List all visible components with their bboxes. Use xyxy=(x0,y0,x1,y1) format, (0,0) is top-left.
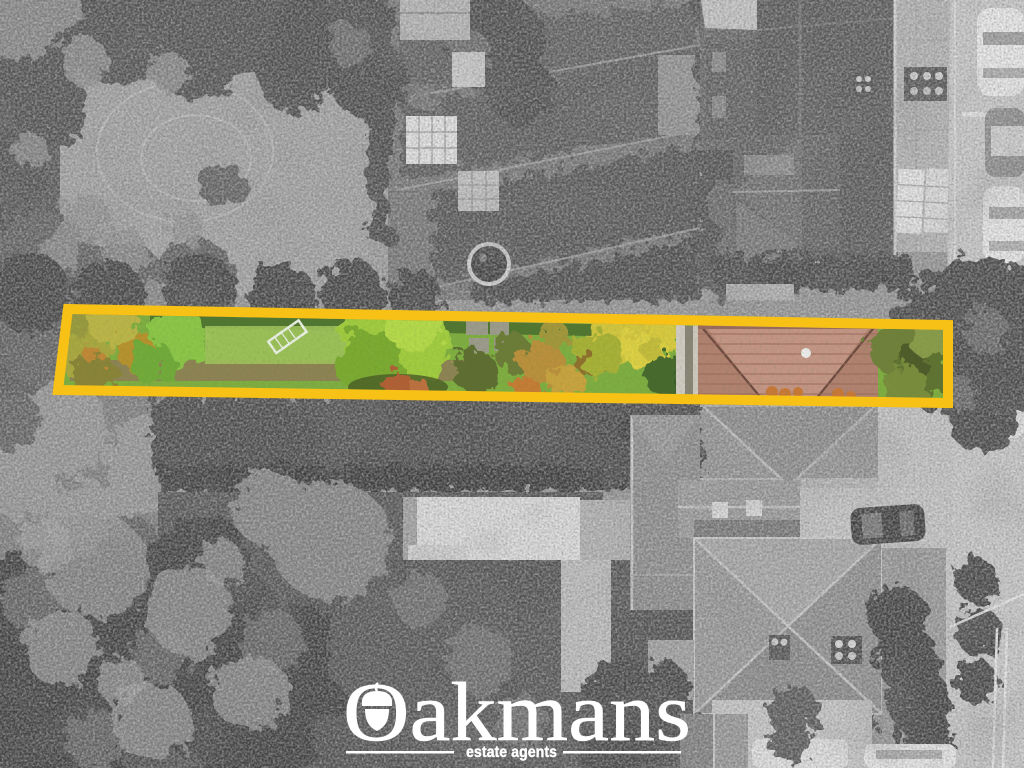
svg-text:estate agents: estate agents xyxy=(466,744,557,761)
